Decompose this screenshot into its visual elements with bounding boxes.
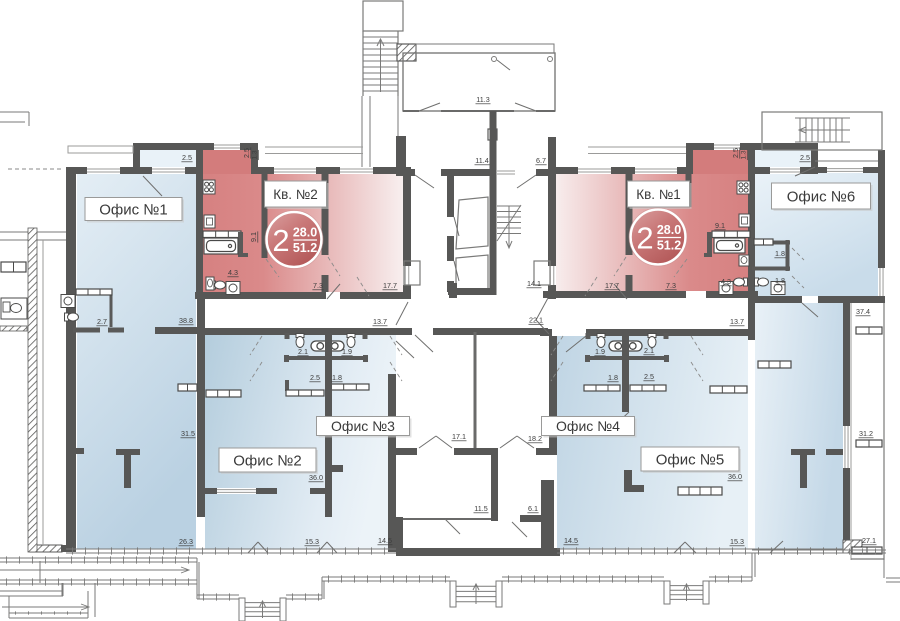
svg-text:Офис №1: Офис №1 [99, 201, 168, 218]
svg-text:1.9: 1.9 [342, 347, 352, 356]
svg-text:9.1: 9.1 [249, 232, 258, 242]
svg-text:7.3: 7.3 [666, 281, 676, 290]
svg-text:2: 2 [272, 223, 289, 258]
svg-text:9.1: 9.1 [715, 221, 725, 230]
svg-text:17.7: 17.7 [383, 281, 397, 290]
svg-text:Офис №6: Офис №6 [787, 188, 856, 205]
svg-text:28.0: 28.0 [293, 226, 317, 240]
svg-text:14.5: 14.5 [564, 536, 578, 545]
svg-text:1.8: 1.8 [775, 249, 785, 258]
svg-text:Кв. №1: Кв. №1 [636, 187, 681, 202]
svg-text:14.1: 14.1 [527, 279, 541, 288]
svg-text:13.7: 13.7 [373, 317, 387, 326]
svg-text:2.5: 2.5 [242, 148, 251, 158]
svg-text:4.3: 4.3 [228, 268, 238, 277]
svg-text:15.3: 15.3 [730, 537, 744, 546]
svg-text:1.3: 1.3 [741, 150, 748, 159]
svg-text:18.2: 18.2 [528, 434, 542, 443]
svg-text:2.5: 2.5 [800, 153, 810, 162]
svg-text:15.3: 15.3 [305, 537, 319, 546]
svg-text:26.3: 26.3 [179, 537, 193, 546]
svg-text:22.1: 22.1 [529, 316, 543, 325]
svg-text:2.5: 2.5 [182, 153, 192, 162]
svg-text:1.8: 1.8 [332, 373, 342, 382]
svg-text:2.5: 2.5 [310, 373, 320, 382]
svg-text:11.4: 11.4 [475, 156, 488, 165]
svg-text:7.3: 7.3 [313, 281, 323, 290]
svg-text:17.1: 17.1 [452, 432, 466, 441]
svg-text:1.8: 1.8 [608, 373, 618, 382]
svg-text:27.1: 27.1 [862, 536, 876, 545]
svg-text:51.2: 51.2 [657, 239, 681, 253]
svg-text:Кв. №2: Кв. №2 [273, 187, 318, 202]
svg-text:37.4: 37.4 [856, 307, 870, 316]
svg-text:51.2: 51.2 [293, 241, 317, 255]
svg-text:31.2: 31.2 [859, 429, 873, 438]
svg-text:38.8: 38.8 [179, 316, 193, 325]
svg-text:6.7: 6.7 [536, 156, 546, 165]
svg-text:2.5: 2.5 [731, 148, 740, 158]
svg-text:31.5: 31.5 [181, 429, 195, 438]
svg-text:36.0: 36.0 [309, 473, 323, 482]
svg-text:2.7: 2.7 [97, 317, 107, 326]
svg-text:6.1: 6.1 [528, 504, 538, 513]
svg-text:17.7: 17.7 [605, 281, 619, 290]
svg-text:13.7: 13.7 [730, 317, 744, 326]
svg-text:11.3: 11.3 [476, 95, 489, 104]
svg-text:2.1: 2.1 [644, 346, 654, 355]
svg-text:11.5: 11.5 [474, 504, 487, 513]
svg-text:Офис №4: Офис №4 [556, 418, 620, 434]
svg-text:2.5: 2.5 [644, 372, 654, 381]
svg-text:1.8: 1.8 [775, 276, 785, 285]
svg-text:Офис №5: Офис №5 [656, 451, 725, 468]
svg-text:4.3: 4.3 [721, 277, 731, 286]
svg-text:2: 2 [636, 221, 653, 256]
svg-text:2.1: 2.1 [298, 347, 308, 356]
svg-text:Офис №2: Офис №2 [233, 452, 302, 469]
svg-text:Офис №3: Офис №3 [331, 418, 395, 434]
svg-text:1.9: 1.9 [595, 347, 605, 356]
svg-text:28.0: 28.0 [657, 223, 681, 237]
svg-text:1.3: 1.3 [252, 150, 259, 159]
svg-text:36.0: 36.0 [728, 472, 742, 481]
svg-text:14.5: 14.5 [378, 536, 392, 545]
